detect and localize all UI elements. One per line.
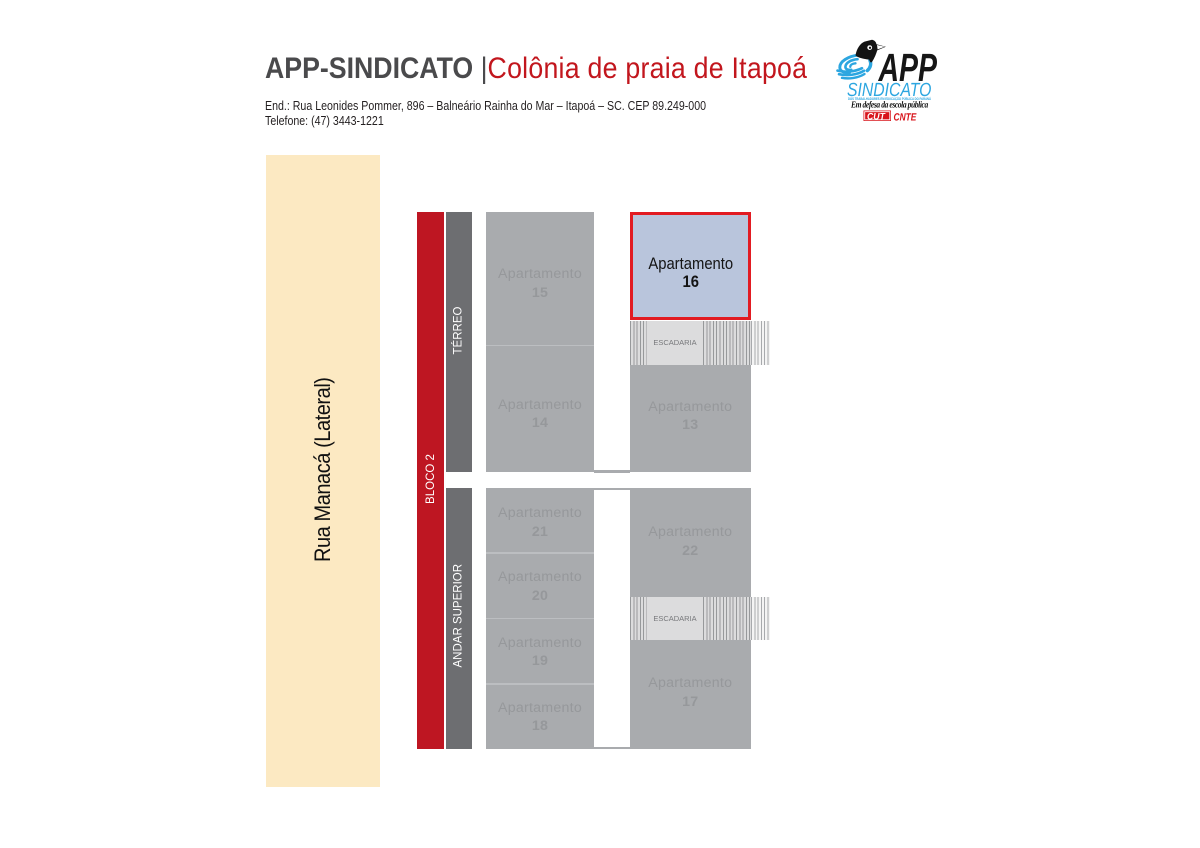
- svg-text:CUT: CUT: [867, 112, 886, 123]
- svg-text:CNTE: CNTE: [894, 111, 918, 123]
- svg-text:Em defesa da escola pública: Em defesa da escola pública: [850, 100, 928, 110]
